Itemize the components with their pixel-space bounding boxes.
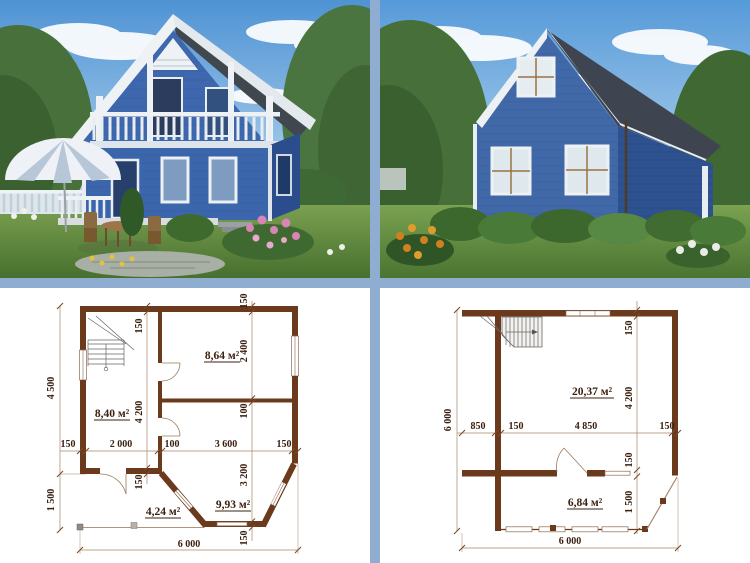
dimension-ticks bbox=[454, 307, 681, 551]
dim-row-1: 2 000 bbox=[110, 439, 133, 450]
side-window bbox=[277, 155, 291, 195]
area-hall: 4,24 м² bbox=[146, 506, 181, 518]
dim-left-bottom: 1 500 bbox=[46, 489, 57, 512]
staircase bbox=[88, 316, 134, 371]
house-rear-illustration bbox=[380, 0, 750, 278]
dim-inner-0: 150 bbox=[134, 319, 145, 334]
dim-right-1: 4 200 bbox=[624, 387, 635, 410]
extension-lines bbox=[457, 301, 678, 552]
plan-second-floor: 6 000 850 150 4 850 150 150 4 200 150 1 … bbox=[380, 288, 750, 563]
area-labels: 8,64 м² 8,40 м² 4,24 м² 9,93 м² bbox=[94, 350, 251, 518]
second-floor-plan-drawing: 6 000 850 150 4 850 150 150 4 200 150 1 … bbox=[380, 288, 750, 563]
door-swing bbox=[556, 448, 587, 473]
porch-edge bbox=[77, 523, 203, 531]
dim-right-4: 150 bbox=[239, 531, 250, 546]
dim-right-1: 2 400 bbox=[239, 340, 250, 363]
area-room-top-right: 8,64 м² bbox=[205, 350, 240, 362]
window-2 bbox=[210, 158, 236, 202]
house-front-illustration bbox=[0, 0, 370, 278]
plan-first-floor: 4 500 1 500 150 2 000 100 3 600 150 150 … bbox=[0, 288, 370, 563]
dim-row-0: 850 bbox=[471, 421, 486, 432]
dim-bottom: 6 000 bbox=[559, 536, 582, 547]
render-rear-view bbox=[380, 0, 750, 278]
dim-row-3: 3 600 bbox=[215, 439, 238, 450]
dimension-labels: 6 000 850 150 4 850 150 150 4 200 150 1 … bbox=[443, 321, 675, 548]
area-bay-room: 9,93 м² bbox=[216, 499, 251, 511]
dim-right-3: 1 500 bbox=[624, 491, 635, 514]
first-floor-plan-drawing: 4 500 1 500 150 2 000 100 3 600 150 150 … bbox=[0, 288, 370, 563]
dim-row-2: 4 850 bbox=[575, 421, 598, 432]
staircase bbox=[480, 316, 542, 347]
dim-inner-2: 150 bbox=[134, 475, 145, 490]
dim-right-3: 3 200 bbox=[239, 464, 250, 487]
window-1 bbox=[162, 158, 188, 202]
dim-row-4: 150 bbox=[277, 439, 292, 450]
window-wall-bottom bbox=[501, 525, 648, 532]
dim-row-1: 150 bbox=[509, 421, 524, 432]
dim-right-0: 150 bbox=[239, 294, 250, 309]
dim-right-2: 150 bbox=[624, 453, 635, 468]
area-lower-room: 6,84 м² bbox=[568, 497, 603, 509]
area-room-left: 8,40 м² bbox=[95, 408, 130, 420]
house-project-collage: 4 500 1 500 150 2 000 100 3 600 150 150 … bbox=[0, 0, 750, 563]
dim-inner-1: 4 200 bbox=[134, 401, 145, 424]
door-swings bbox=[100, 363, 180, 494]
render-front-view bbox=[0, 0, 370, 278]
dim-right-2: 100 bbox=[239, 404, 250, 419]
dim-row-3: 150 bbox=[660, 421, 675, 432]
dim-right-0: 150 bbox=[624, 321, 635, 336]
area-labels: 20,37 м² 6,84 м² bbox=[567, 386, 614, 509]
dim-left-top: 4 500 bbox=[46, 377, 57, 400]
bay-edge bbox=[647, 477, 677, 529]
dim-left: 6 000 bbox=[443, 409, 454, 432]
dim-row-2: 100 bbox=[165, 439, 180, 450]
dim-row-0: 150 bbox=[61, 439, 76, 450]
area-main-room: 20,37 м² bbox=[572, 386, 613, 398]
dim-bottom: 6 000 bbox=[178, 539, 201, 550]
white-fence bbox=[0, 190, 92, 214]
